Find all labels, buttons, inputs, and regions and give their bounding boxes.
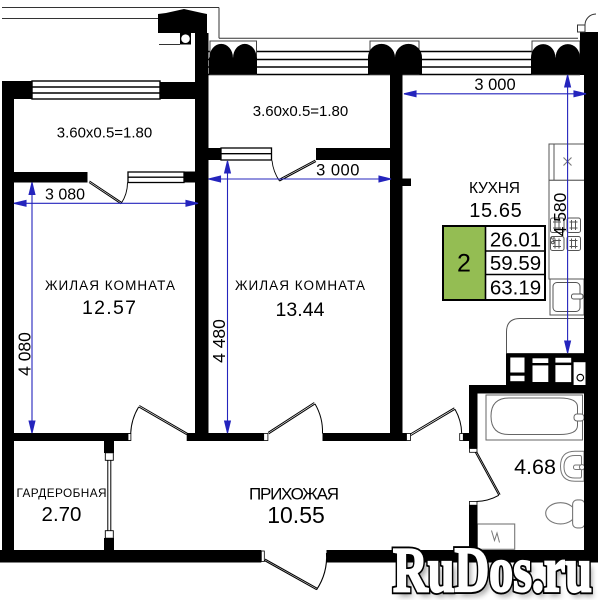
svg-text:2.70: 2.70	[42, 503, 82, 526]
svg-text:2: 2	[457, 250, 471, 278]
svg-text:3 080: 3 080	[45, 187, 85, 204]
svg-text:ЖИЛАЯ КОМНАТА: ЖИЛАЯ КОМНАТА	[45, 278, 175, 293]
svg-text:26.01: 26.01	[490, 229, 541, 252]
svg-text:RuDos.ru: RuDos.ru	[393, 534, 592, 600]
svg-text:12.57: 12.57	[82, 297, 136, 319]
svg-text:4 480: 4 480	[209, 319, 229, 363]
svg-text:3 000: 3 000	[474, 76, 515, 94]
svg-text:15.65: 15.65	[469, 200, 522, 222]
svg-text:КУХНЯ: КУХНЯ	[469, 180, 520, 197]
svg-text:3.60x0.5=1.80: 3.60x0.5=1.80	[57, 125, 153, 142]
svg-text:13.44: 13.44	[276, 299, 325, 321]
svg-text:ПРИХОЖАЯ: ПРИХОЖАЯ	[249, 485, 339, 504]
svg-text:3.60x0.5=1.80: 3.60x0.5=1.80	[253, 103, 349, 120]
svg-text:ЖИЛАЯ КОМНАТА: ЖИЛАЯ КОМНАТА	[235, 278, 365, 293]
svg-text:59.59: 59.59	[490, 252, 541, 275]
svg-text:10.55: 10.55	[267, 502, 325, 528]
svg-text:4 580: 4 580	[550, 192, 570, 236]
svg-text:3 000: 3 000	[316, 162, 360, 180]
svg-text:4.68: 4.68	[514, 455, 556, 479]
svg-text:4 080: 4 080	[15, 332, 35, 376]
svg-text:ГАРДЕРОБНАЯ: ГАРДЕРОБНАЯ	[17, 486, 107, 500]
svg-text:63.19: 63.19	[490, 277, 541, 300]
